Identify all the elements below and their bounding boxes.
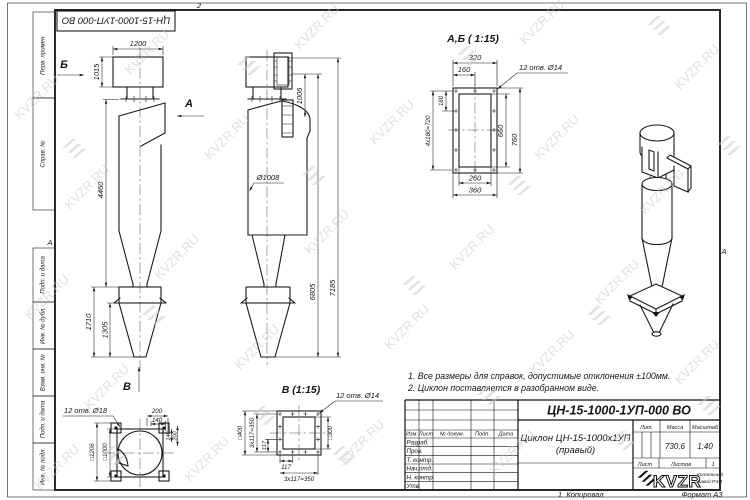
kvzr-logo-text: KVZR (653, 472, 701, 491)
row-prov: Пров. (407, 448, 423, 455)
dim-1015: 1015 (92, 63, 101, 81)
watermark-logo-icon (302, 166, 326, 185)
dim-760: 760 (510, 133, 519, 146)
doc-number: ЦН-15-1000-1УП-000 ВО (547, 404, 691, 418)
zone-mark-bottom: 1 (558, 490, 562, 499)
watermark-text: KVZR.RU (446, 221, 497, 272)
detail-ab-title: А,Б ( 1:15) (446, 33, 499, 45)
side-view: Ø1008 1006 6805 7185 (241, 50, 341, 365)
row-nachotd: Нач.отд. (407, 466, 433, 473)
zone-mark-top: 2 (196, 1, 202, 10)
lit-label: Лит. (639, 425, 653, 431)
dim-360: 360 (469, 186, 482, 195)
dim-r140: 140 (166, 430, 172, 440)
watermark-text: KVZR.RU (181, 433, 232, 484)
view-arrow-b-label: Б (60, 59, 68, 71)
copied-label: Копировал (566, 490, 604, 499)
dim-1305: 1305 (101, 321, 110, 339)
dim-pitch-350-bottom: 3х117=350 (284, 476, 315, 483)
watermark-text: KVZR.RU (381, 301, 432, 352)
dim-200: 200 (151, 408, 163, 415)
watermark-text: KVZR.RU (671, 336, 722, 387)
zone-mark-right: А (720, 247, 726, 256)
iso-view (627, 125, 691, 336)
watermark-layer: KVZR.RU KVZR.RU KVZR.RU KVZR.RU KVZR.RU … (11, 0, 741, 492)
sheets-value: 1 (711, 462, 714, 468)
detail-v-title: В (1:15) (282, 384, 321, 396)
watermark-logo-icon (697, 396, 721, 415)
dim-sq1206: □1206 (89, 443, 96, 461)
watermark-text: KVZR.RU (201, 111, 252, 162)
scale-label: Масштаб (692, 425, 719, 431)
watermark-logo-icon (647, 16, 671, 35)
top-stamp-text: ЦН-15-1000-1УП-000 ВО (61, 15, 170, 26)
scale-value: 1:40 (697, 442, 713, 451)
mass-label: Масса (667, 425, 684, 431)
watermark-logo-icon (237, 56, 261, 75)
margin-label: Справ. № (40, 140, 47, 168)
sheets-label: Листов (670, 462, 691, 468)
watermark-text: KVZR.RU (336, 416, 387, 467)
detail-ab: А,Б ( 1:15) 320 160 12 отв. Ø14 180 4х18… (425, 33, 568, 198)
front-view: 1200 1015 4460 1710 1305 Б А В (57, 39, 204, 393)
dim-sq400: □400 (237, 425, 244, 440)
watermark-text: KVZR.RU (231, 321, 282, 372)
logo-subtext-1: Котельный (697, 471, 723, 478)
format-label: Формат А3 (681, 490, 723, 499)
dim-sq300: □300 (327, 425, 334, 440)
col-date: Дата (498, 432, 514, 438)
drawing-svg: Перв. примен. Справ. № Подп. и дата Инв.… (0, 0, 750, 500)
row-utv: Утв. (406, 483, 421, 490)
col-list: Лист (418, 432, 434, 438)
watermark-logo-icon (62, 139, 86, 158)
watermark-text: KVZR.RU (291, 1, 342, 52)
col-izm: Изм. (406, 432, 418, 438)
detail-v-holes-note: 12 отв. Ø14 (336, 391, 379, 400)
row-nkontr: Н. контр. (407, 474, 435, 481)
row-tkontr: Т. контр. (407, 457, 434, 464)
watermark-text: KVZR.RU (531, 111, 582, 162)
zone-mark-left: А (46, 238, 52, 247)
watermark-text: KVZR.RU (671, 41, 722, 92)
watermark-text: KVZR.RU (21, 271, 72, 322)
watermark-text: KVZR.RU (301, 206, 352, 257)
dim-180: 180 (438, 95, 445, 106)
sheet-label: Лист (637, 462, 653, 468)
watermark-text: KVZR.RU (366, 96, 417, 147)
dim-1710: 1710 (84, 313, 93, 331)
dim-pitch-720: 4х180=720 (425, 115, 432, 146)
detail-top-view: 12 отв. Ø18 □1206 □1000 200 140 140 200 (63, 406, 179, 487)
margin-label: Перв. примен. (41, 35, 47, 75)
detail-ab-holes-note: 12 отв. Ø14 (519, 63, 562, 72)
dim-160: 160 (458, 65, 471, 74)
dim-diameter: Ø1008 (256, 173, 280, 182)
watermark-text: KVZR.RU (31, 441, 82, 492)
view-arrow-a-label: А (184, 98, 193, 110)
dim-1006: 1006 (295, 87, 304, 105)
dim-117-left: 117 (262, 440, 268, 450)
dim-pitch-350-left: 3х117=350 (249, 417, 256, 448)
watermark-logo-icon (587, 306, 611, 325)
part-name-line2: (правый) (556, 445, 595, 456)
mass-value: 730,6 (665, 442, 686, 451)
col-doc: № докум. (440, 432, 465, 438)
dim-660: 660 (496, 124, 505, 137)
dim-7185: 7185 (328, 279, 337, 297)
view-arrow-v-label: В (123, 381, 131, 393)
logo-subtext-2: завод РЭП (697, 479, 722, 485)
dim-6805: 6805 (308, 283, 317, 301)
dim-140: 140 (152, 417, 163, 424)
watermark-text: KVZR.RU (526, 326, 577, 377)
watermark-logo-icon (507, 176, 531, 195)
col-sign: Подп. (475, 432, 490, 438)
note-2: 2. Циклон поставляется в разобранном вид… (407, 383, 599, 393)
watermark-logo-icon (402, 276, 426, 295)
watermark-text: KVZR.RU (121, 26, 172, 77)
watermark-logo-icon (142, 306, 166, 325)
dim-260: 260 (468, 174, 482, 183)
dim-117-bottom: 117 (281, 464, 291, 471)
margin-label: Подп. и дата (41, 400, 47, 438)
side-inlet-flange (282, 100, 293, 137)
title-block: Изм. Лист № докум. Подп. Дата Разраб. Пр… (405, 400, 723, 491)
watermark-text: KVZR.RU (516, 0, 567, 47)
dim-r200: 200 (173, 430, 179, 441)
margin-label: Взам. инв. № (40, 353, 47, 391)
drawing-sheet: Перв. примен. Справ. № Подп. и дата Инв.… (0, 0, 750, 500)
row-razrab: Разраб. (407, 440, 429, 447)
